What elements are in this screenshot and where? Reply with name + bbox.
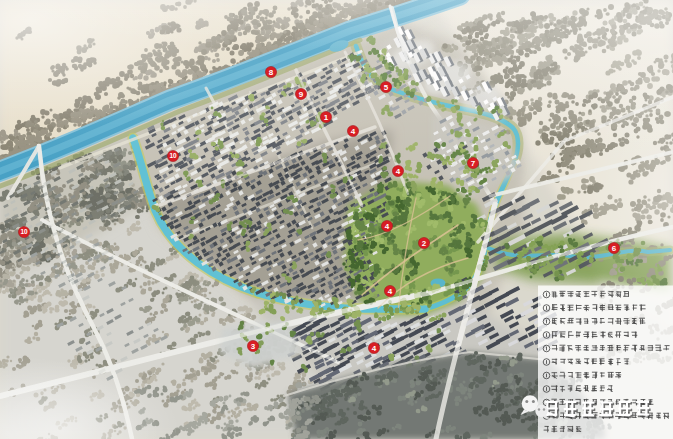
svg-text:4: 4	[351, 127, 356, 136]
svg-text:1: 1	[324, 113, 329, 122]
svg-text:10: 10	[169, 152, 177, 159]
svg-text:10: 10	[20, 228, 28, 235]
svg-text:7: 7	[471, 159, 476, 168]
svg-text:6: 6	[612, 244, 617, 253]
svg-text:4: 4	[372, 344, 377, 353]
svg-text:4: 4	[388, 287, 393, 296]
svg-text:9: 9	[299, 90, 304, 99]
svg-text:4: 4	[396, 167, 401, 176]
svg-text:8: 8	[269, 68, 274, 77]
svg-text:5: 5	[384, 83, 389, 92]
svg-text:4: 4	[385, 222, 390, 231]
svg-text:3: 3	[251, 342, 256, 351]
svg-text:2: 2	[422, 239, 427, 248]
